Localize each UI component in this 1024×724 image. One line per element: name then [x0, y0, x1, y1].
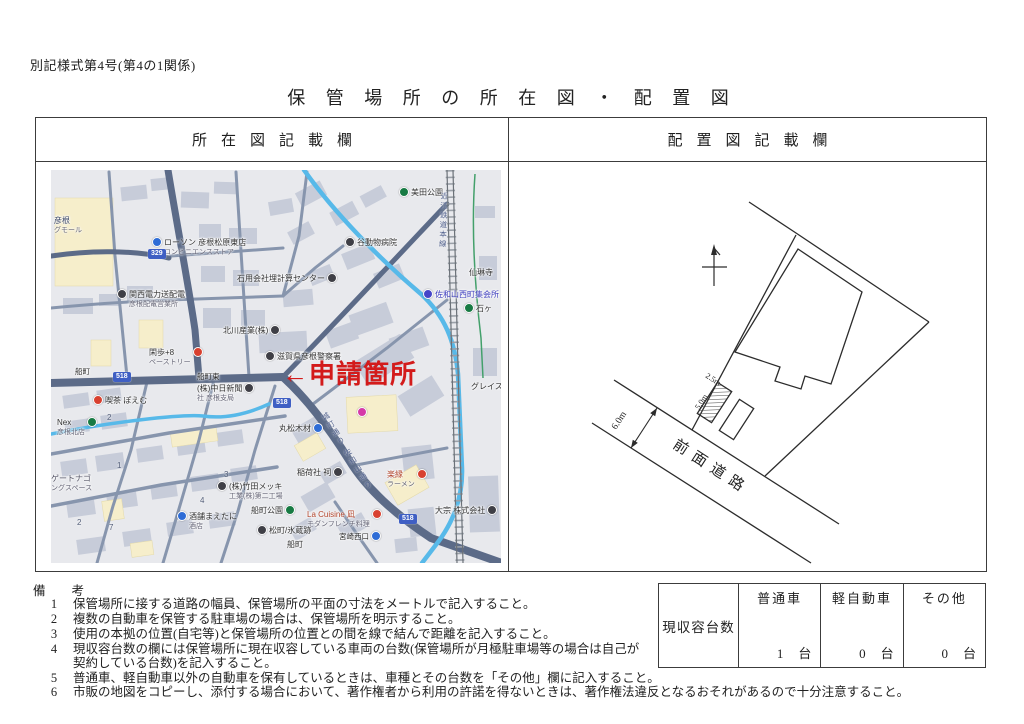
police-icon: [265, 351, 275, 361]
power-office-label: 関西電力送配電彦根配電営業所: [117, 290, 185, 309]
pastry-label: 閑歩+8ペーストリー: [149, 348, 203, 367]
shop-icon: [177, 511, 187, 521]
convenience-store-label: ローソン 彦根松原東店コンビニエンスストア: [152, 238, 246, 257]
remark-text: 現収容台数の欄には保管場所に現在収容している車両の台数(保管場所が月極駐車場等の…: [73, 643, 651, 671]
parcel-east-edge: [765, 322, 929, 476]
meeting-hall-label: 佐和山西町集会所: [423, 290, 499, 300]
company-label: 北川産業(株): [223, 326, 280, 336]
building-outline: [735, 249, 862, 389]
newspaper-label: (株)中日新聞社 彦根支局: [197, 384, 254, 403]
page-title: 保 管 場 所 の 所 在 図 ・ 配 置 図: [0, 84, 1024, 110]
store-icon: [357, 407, 367, 417]
layout-diagram-header: 配置図記載欄: [509, 118, 986, 162]
office-icon: [270, 325, 280, 335]
form-number: 別記様式第4号(第4の1関係): [30, 55, 196, 74]
restaurant-label: La Cuisine 凪モダンフレンチ料理: [307, 510, 382, 529]
map-base: [51, 170, 501, 563]
block-number: 7: [109, 523, 113, 532]
block-number: 4: [200, 496, 204, 505]
park-label: 美田公園: [399, 188, 443, 198]
office-icon: [244, 383, 254, 393]
layout-diagram-column: 配置図記載欄: [509, 118, 986, 571]
remark-number: 5: [43, 672, 65, 686]
capacity-value: 0台: [941, 643, 976, 662]
location-map-header: 所在図記載欄: [36, 118, 508, 162]
storehouse-label: 松町/氷蔵跡: [257, 526, 311, 536]
hall-icon: [423, 289, 433, 299]
road-near-edge: [614, 380, 839, 524]
factory-icon: [217, 481, 227, 491]
plating-factory-label: (株)竹田メッキ工業(株)第二工場: [217, 482, 283, 501]
remark-note: 5普通車、軽自動車以外の自動車を保有しているときは、車種とその台数を「その他」欄…: [28, 672, 994, 686]
capacity-table: 現収容台数 普通車1台軽自動車0台その他0台: [658, 583, 986, 668]
remark-number: 1: [43, 598, 65, 612]
company-label: 大宗 株式会社: [435, 506, 497, 516]
poi-icon: [464, 303, 474, 313]
temple-label: 仙琳寺: [469, 268, 493, 278]
shrine-label: 稲荷社 祠: [297, 468, 343, 478]
restaurant-icon: [372, 509, 382, 519]
bus-stop-icon: [371, 531, 381, 541]
restaurant-icon: [193, 347, 203, 357]
block-number: 3: [224, 470, 228, 479]
remark-number: 6: [43, 686, 65, 700]
office-label: 石用会社埋計算センター: [237, 274, 337, 284]
front-road-label: 前面道路: [670, 436, 753, 498]
capacity-column: その他0台: [904, 584, 985, 667]
bus-stop-label: 宮崎西口: [339, 532, 381, 542]
bus-stop-label: 船町: [75, 367, 90, 377]
road-far-edge: [592, 423, 811, 563]
parking-label: ゲートナゴングスペース: [51, 474, 92, 493]
ramen-label: 楽縁ラーメン: [387, 470, 427, 489]
storage-location-form-page: 別記様式第4号(第4の1関係) 保 管 場 所 の 所 在 図 ・ 配 置 図 …: [0, 0, 1024, 724]
store-label: [357, 408, 367, 417]
capacity-row-label: 現収容台数: [659, 584, 739, 667]
office-icon: [117, 289, 127, 299]
remark-number: 4: [43, 643, 65, 671]
cafe-label: 喫茶 ぽえむ: [93, 396, 147, 406]
layout-diagram: 前面道路 6.0m 2.5m 5.0m: [509, 162, 986, 571]
capacity-column: 軽自動車0台: [821, 584, 903, 667]
remark-note: 6市販の地図をコピーし、添付する場合において、著作権者から利用の許諾を得ないとき…: [28, 686, 994, 700]
hospital-icon: [345, 237, 355, 247]
capacity-value: 1台: [777, 643, 812, 662]
remark-text: 市販の地図をコピーし、添付する場合において、著作権者から利用の許諾を得ないときは…: [73, 686, 981, 700]
capacity-column-label: その他: [904, 588, 985, 607]
park-icon: [399, 187, 409, 197]
route-badge: 518: [113, 372, 131, 382]
capacity-value: 0台: [859, 643, 894, 662]
office-icon: [487, 505, 497, 515]
shrine-icon: [333, 467, 343, 477]
poi-label: 石ヶ: [464, 304, 492, 314]
route-badge: 518: [273, 398, 291, 408]
remark-text: 普通車、軽自動車以外の自動車を保有しているときは、車種とその台数を「その他」欄に…: [73, 672, 981, 686]
application-location-annotation: ←申請箇所: [282, 354, 417, 391]
store-icon: [87, 417, 97, 427]
park-label: 船町公園: [251, 506, 295, 516]
convenience-store-icon: [152, 237, 162, 247]
lumber-label: 丸松木材: [279, 424, 323, 434]
block-number: 2: [77, 518, 81, 527]
block-number: 2: [107, 413, 111, 422]
capacity-column: 普通車1台: [739, 584, 821, 667]
road-width-dimension: 6.0m: [610, 410, 629, 432]
main-table: 所在図記載欄: [35, 117, 987, 572]
office-icon: [327, 273, 337, 283]
restaurant-icon: [417, 469, 427, 479]
boundary-road-line: [749, 202, 929, 322]
shop-icon: [313, 423, 323, 433]
route-badge: 518: [399, 514, 417, 524]
remark-number: 3: [43, 628, 65, 642]
block-number: 1: [117, 461, 121, 470]
location-map-column: 所在図記載欄: [36, 118, 509, 571]
railway-name-label: 近江鉄道本線: [437, 192, 450, 249]
district-label: 船町: [287, 540, 303, 550]
capacity-column-label: 普通車: [739, 588, 820, 607]
convenience-store-label: Nex彦根北店: [57, 418, 97, 437]
poi-icon: [257, 525, 267, 535]
apartment-label: グレイスハ: [471, 382, 501, 392]
capacity-column-label: 軽自動車: [821, 588, 902, 607]
parking-space-empty: [719, 399, 753, 439]
animal-hospital-label: 谷動物病院: [345, 238, 397, 248]
mall-label: 彦根グモール: [54, 216, 82, 235]
remark-number: 2: [43, 613, 65, 627]
location-map: 彦根グモールローソン 彦根松原東店コンビニエンスストア美田公園谷動物病院石用会社…: [51, 170, 501, 563]
park-icon: [285, 505, 295, 515]
route-badge: 329: [148, 249, 166, 259]
liquor-shop-label: 酒舗まえたに酒店: [177, 512, 237, 531]
bus-stop-label: 船町東: [197, 372, 220, 382]
cafe-icon: [93, 395, 103, 405]
